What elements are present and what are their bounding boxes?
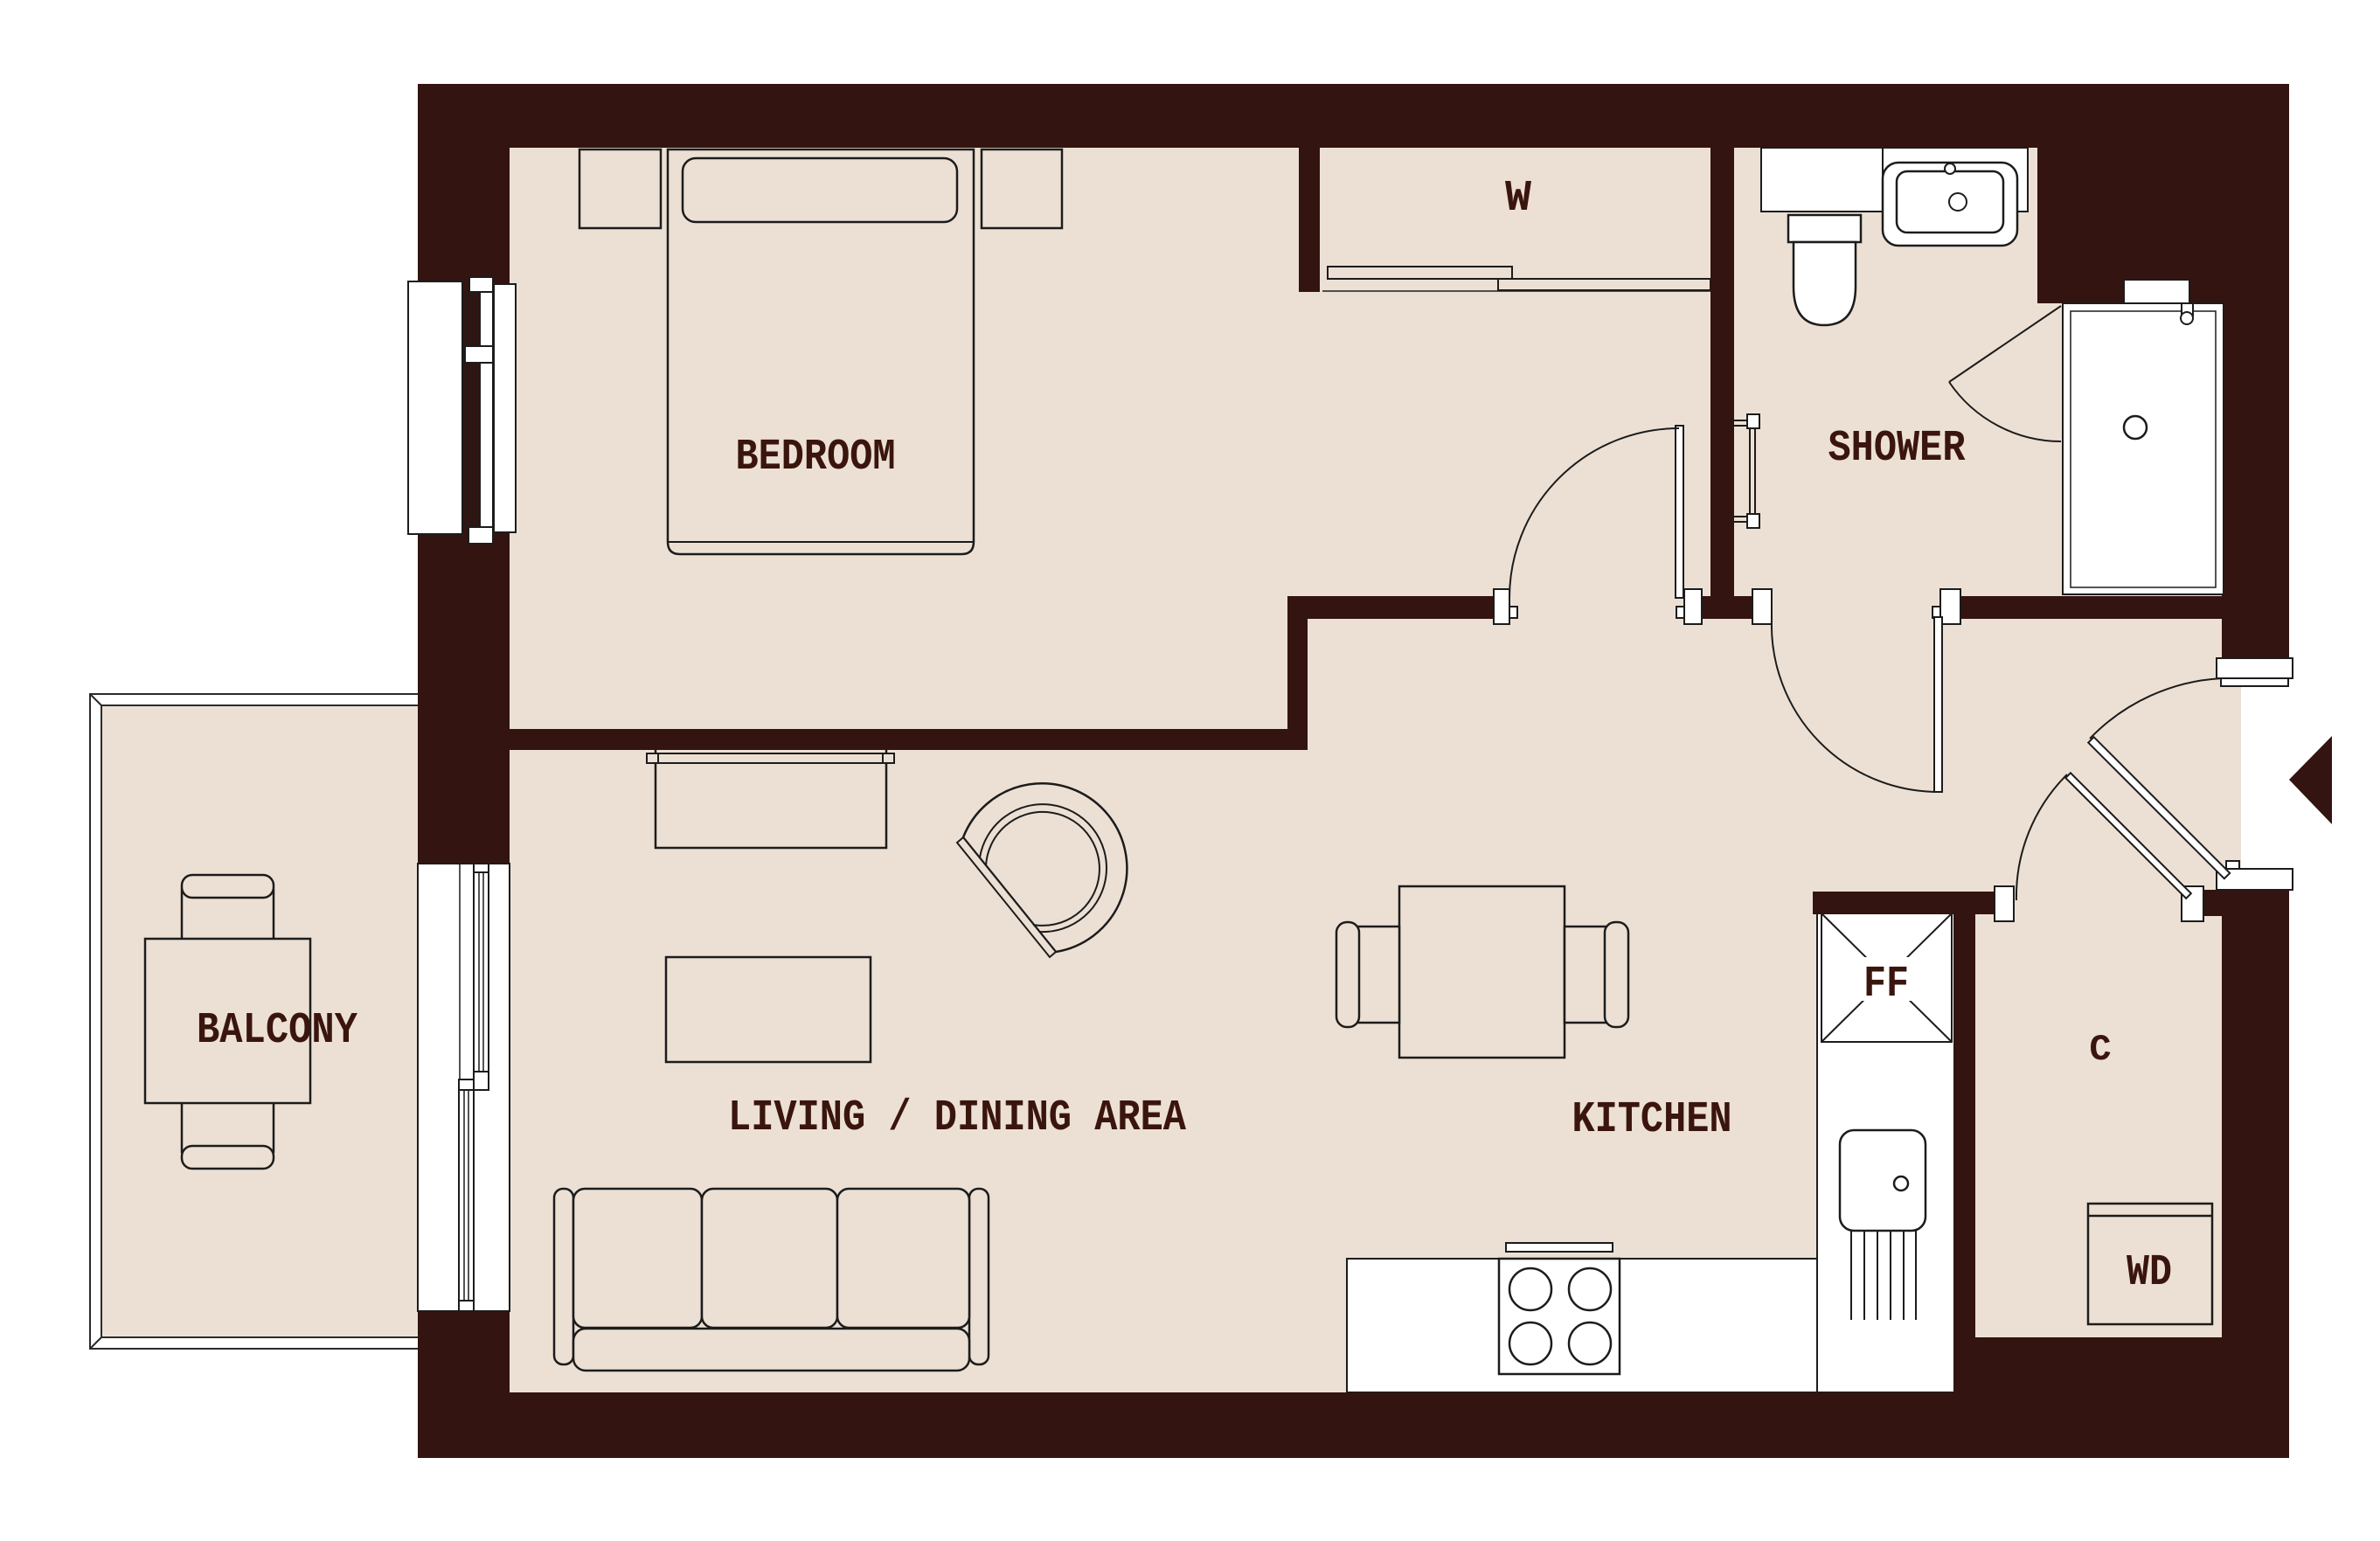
svg-text:LIVING / DINING AREA: LIVING / DINING AREA <box>728 1093 1186 1143</box>
svg-text:WD: WD <box>2127 1248 2172 1298</box>
svg-text:KITCHEN: KITCHEN <box>1572 1095 1732 1145</box>
svg-text:SHOWER: SHOWER <box>1828 424 1966 474</box>
svg-text:BALCONY: BALCONY <box>197 1006 357 1056</box>
svg-text:FF: FF <box>1863 960 1909 1010</box>
svg-text:W: W <box>1505 174 1531 224</box>
svg-text:BEDROOM: BEDROOM <box>736 433 896 482</box>
svg-text:C: C <box>2089 1029 2111 1071</box>
